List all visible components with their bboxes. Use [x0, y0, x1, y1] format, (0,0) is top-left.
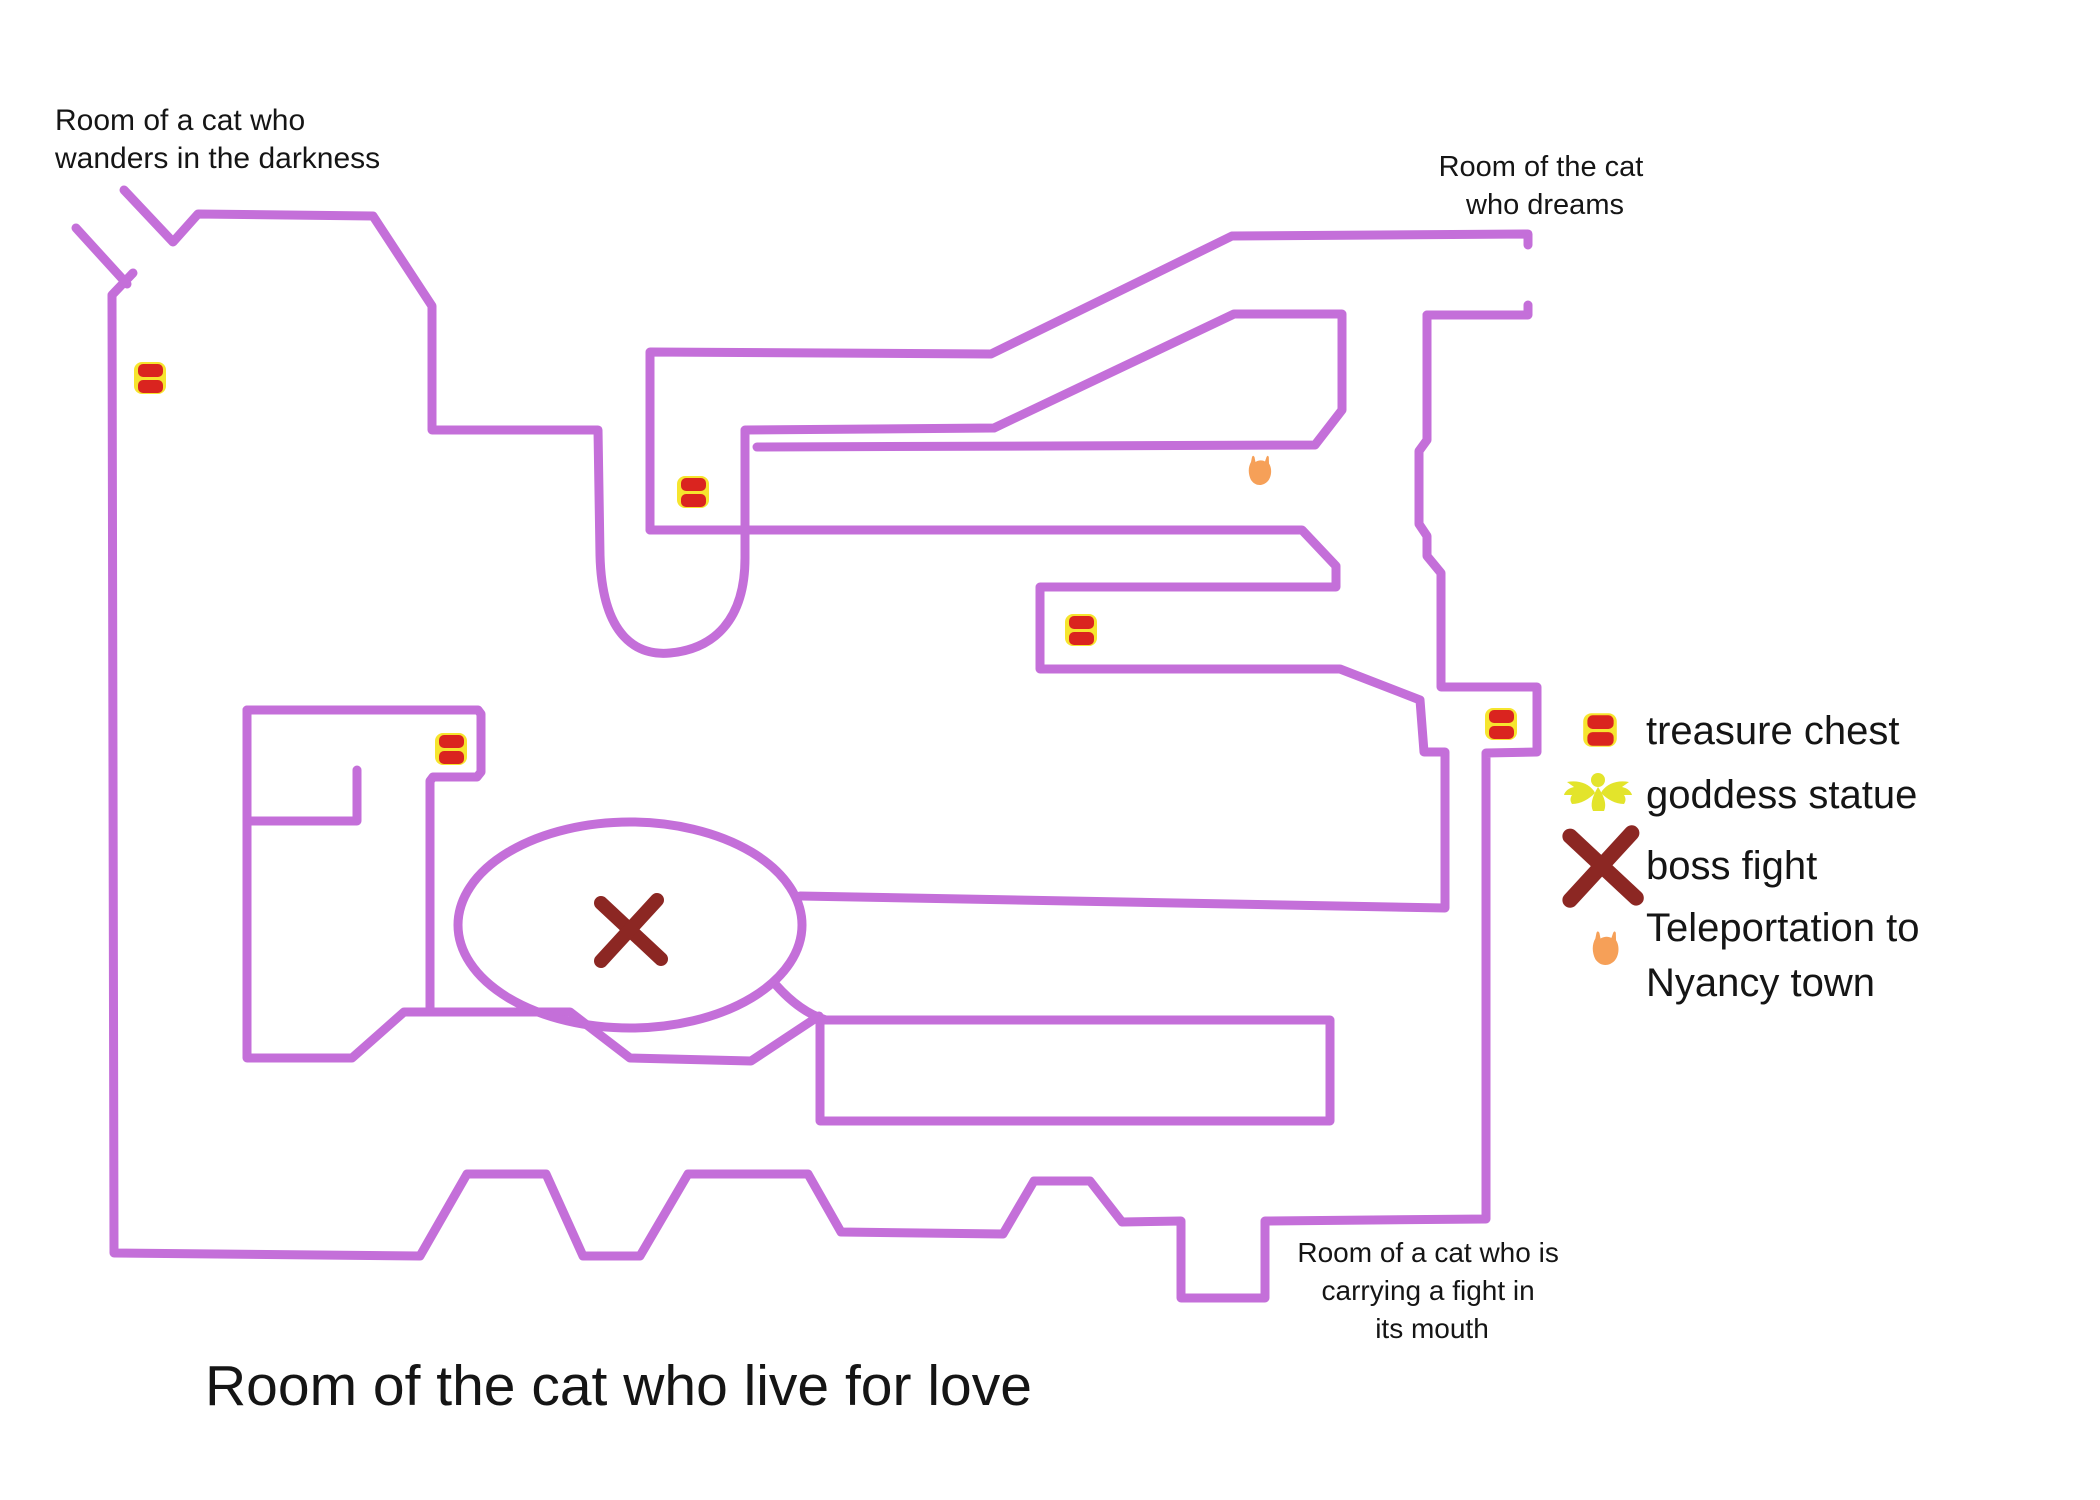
legend-row-boss-fight: boss fight — [1570, 833, 1817, 900]
wall-inner-block — [820, 1020, 1330, 1121]
legend-label-goddess-statue: goddess statue — [1646, 773, 1917, 817]
label-room-fight: Room of a cat who is carrying a fight in… — [1297, 1237, 1566, 1344]
legend: treasure chest goddess statue boss fight… — [1564, 709, 1920, 1005]
map-marker-treasure-chest — [435, 733, 467, 765]
legend-label-teleport-line2: Nyancy town — [1646, 961, 1875, 1005]
wall-entrance-diagonal — [76, 228, 127, 284]
map-markers — [134, 362, 1517, 961]
map-marker-treasure-chest — [677, 476, 709, 508]
map-marker-teleport — [1249, 456, 1271, 485]
teleport-icon — [1593, 931, 1619, 965]
wall-small-stub — [247, 770, 357, 821]
wall-central-floor — [650, 530, 1445, 908]
label-room-wanders: Room of a cat who wanders in the darknes… — [54, 104, 380, 175]
label-room-dreams: Room of the cat who dreams — [1439, 151, 1652, 221]
wall-dreams-corridor-bottom — [1427, 305, 1528, 315]
legend-label-teleport-line1: Teleportation to — [1646, 906, 1920, 950]
wall-teleport-corridor-top — [745, 314, 1342, 530]
legend-row-teleport: Teleportation to Nyancy town — [1593, 906, 1920, 1005]
map-marker-treasure-chest — [1485, 708, 1517, 740]
legend-label-treasure-chest: treasure chest — [1646, 709, 1899, 753]
map-walls — [76, 190, 1537, 1298]
treasure-chest-icon — [1583, 713, 1617, 747]
legend-row-goddess-statue: goddess statue — [1564, 773, 1917, 817]
wall-block-connector — [776, 985, 826, 1020]
page-title: Room of the cat who live for love — [205, 1354, 1032, 1418]
map-marker-boss-fight — [601, 900, 661, 961]
legend-row-treasure-chest: treasure chest — [1583, 709, 1899, 753]
map-marker-treasure-chest — [134, 362, 166, 394]
goddess-statue-icon — [1564, 773, 1632, 811]
legend-label-boss-fight: boss fight — [1646, 844, 1817, 888]
boss-fight-icon — [1570, 833, 1636, 900]
map-page: Room of a cat who wanders in the darknes… — [0, 0, 2100, 1500]
dungeon-map: Room of a cat who wanders in the darknes… — [0, 0, 2100, 1500]
map-marker-treasure-chest — [1065, 614, 1097, 646]
